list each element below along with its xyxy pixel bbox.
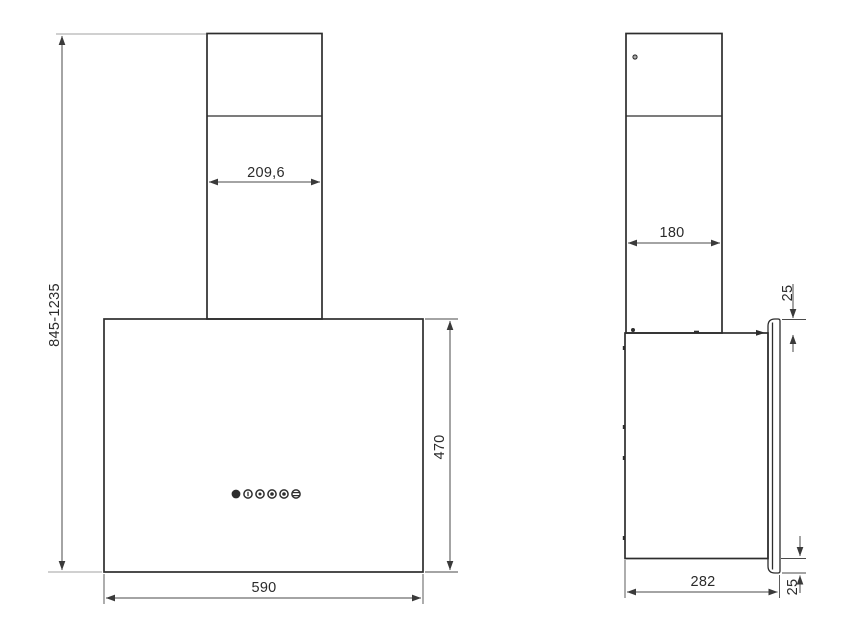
dim-panel-bottom-offset-label: 25 <box>785 579 801 596</box>
mount-tick <box>623 536 626 540</box>
speed-2-button-icon <box>256 490 264 498</box>
control-panel <box>232 490 301 499</box>
front-view: 209,6 590 470 845-1235 <box>47 34 458 605</box>
timer-button-icon <box>280 490 288 498</box>
speed-1-button-icon <box>244 490 252 498</box>
light-button-icon <box>292 490 300 498</box>
dimension-drawing-canvas: 209,6 590 470 845-1235 <box>0 0 857 632</box>
dim-chimney-depth-label: 180 <box>659 225 684 241</box>
front-body-outline <box>104 319 423 572</box>
dim-chimney-depth: 180 <box>628 225 720 243</box>
dim-panel-top-offset-label: 25 <box>780 285 796 302</box>
dim-body-depth-label: 282 <box>690 574 715 590</box>
dim-panel-top-offset: 25 <box>780 284 806 352</box>
power-button-icon <box>232 490 241 499</box>
dim-body-height-label: 470 <box>432 434 448 459</box>
dim-body-depth: 282 <box>625 560 780 598</box>
dim-body-width-label: 590 <box>251 580 276 596</box>
side-view: 180 25 25 282 <box>623 34 806 599</box>
speed-3-button-icon <box>268 490 276 498</box>
side-panel-outline <box>768 319 780 573</box>
side-chimney-outline <box>626 34 722 334</box>
side-body-outline <box>623 328 768 559</box>
screw-icon <box>633 55 637 59</box>
dim-panel-bottom-offset: 25 <box>781 536 806 595</box>
dim-body-width: 590 <box>104 574 423 604</box>
dim-chimney-width-label: 209,6 <box>247 165 285 181</box>
edge-mark <box>694 331 699 333</box>
dim-chimney-width: 209,6 <box>209 165 320 182</box>
screw-dot-icon <box>631 328 635 332</box>
mount-tick <box>623 425 626 429</box>
mount-tick <box>623 346 626 350</box>
dim-total-height-label: 845-1235 <box>47 283 63 347</box>
edge-arrow-icon <box>756 330 765 336</box>
dim-total-height: 845-1235 <box>47 34 206 572</box>
dim-body-height: 470 <box>425 319 458 572</box>
mount-tick <box>623 456 626 460</box>
